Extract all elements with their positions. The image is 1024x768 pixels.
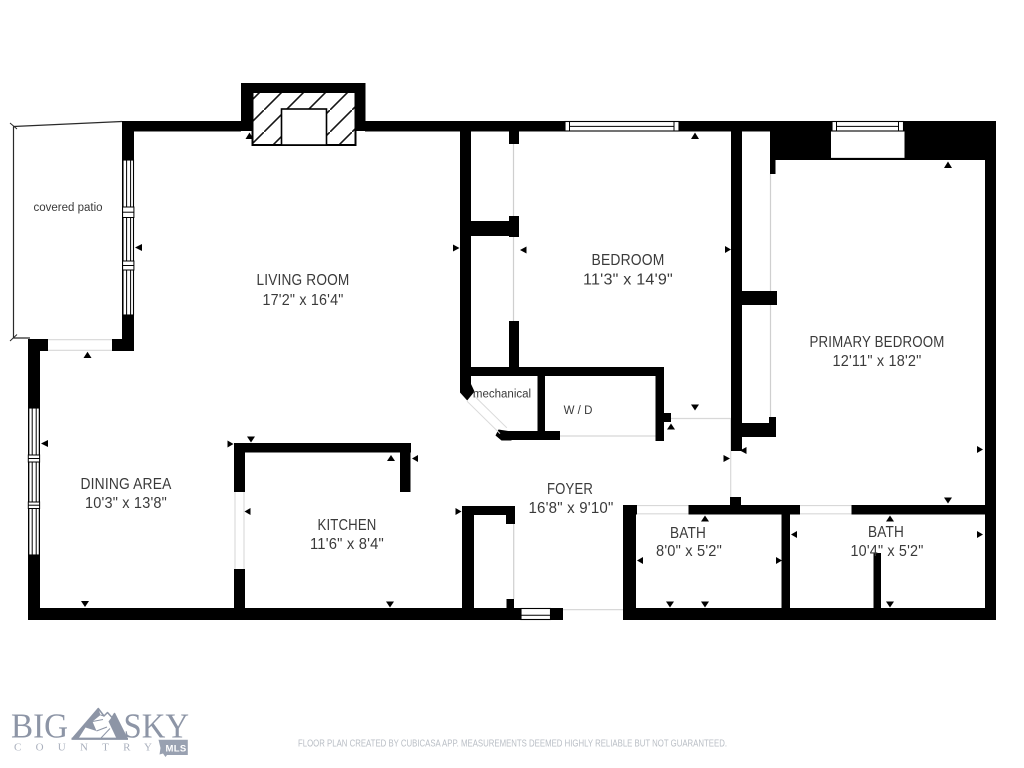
svg-text:covered patio: covered patio	[33, 202, 102, 214]
svg-text:BEDROOM: BEDROOM	[592, 252, 665, 269]
svg-text:KITCHEN: KITCHEN	[318, 517, 377, 534]
svg-text:11'6" x 8'4": 11'6" x 8'4"	[310, 536, 384, 553]
svg-text:FLOOR PLAN CREATED BY CUBICASA: FLOOR PLAN CREATED BY CUBICASA APP. MEAS…	[298, 739, 727, 750]
svg-text:FOYER: FOYER	[547, 481, 593, 498]
svg-text:17'2" x 16'4": 17'2" x 16'4"	[263, 292, 344, 309]
svg-text:16'8" x 9'10": 16'8" x 9'10"	[529, 500, 614, 517]
svg-text:BATH: BATH	[670, 525, 706, 542]
svg-text:LIVING ROOM: LIVING ROOM	[257, 272, 350, 289]
svg-text:mechanical: mechanical	[473, 389, 531, 401]
svg-text:8'0" x 5'2": 8'0" x 5'2"	[656, 543, 722, 560]
svg-text:BATH: BATH	[868, 524, 904, 541]
svg-text:PRIMARY BEDROOM: PRIMARY BEDROOM	[810, 334, 945, 351]
svg-text:12'11" x 18'2": 12'11" x 18'2"	[833, 353, 922, 370]
svg-text:11'3" x 14'9": 11'3" x 14'9"	[583, 272, 673, 289]
svg-text:10'4" x 5'2": 10'4" x 5'2"	[851, 543, 924, 560]
svg-text:MLS: MLS	[166, 744, 187, 755]
svg-text:10'3" x 13'8": 10'3" x 13'8"	[85, 495, 167, 512]
svg-text:W / D: W / D	[564, 405, 593, 417]
svg-text:BIG: BIG	[11, 707, 68, 746]
svg-text:SKY: SKY	[124, 707, 190, 746]
svg-text:DINING AREA: DINING AREA	[81, 476, 172, 493]
